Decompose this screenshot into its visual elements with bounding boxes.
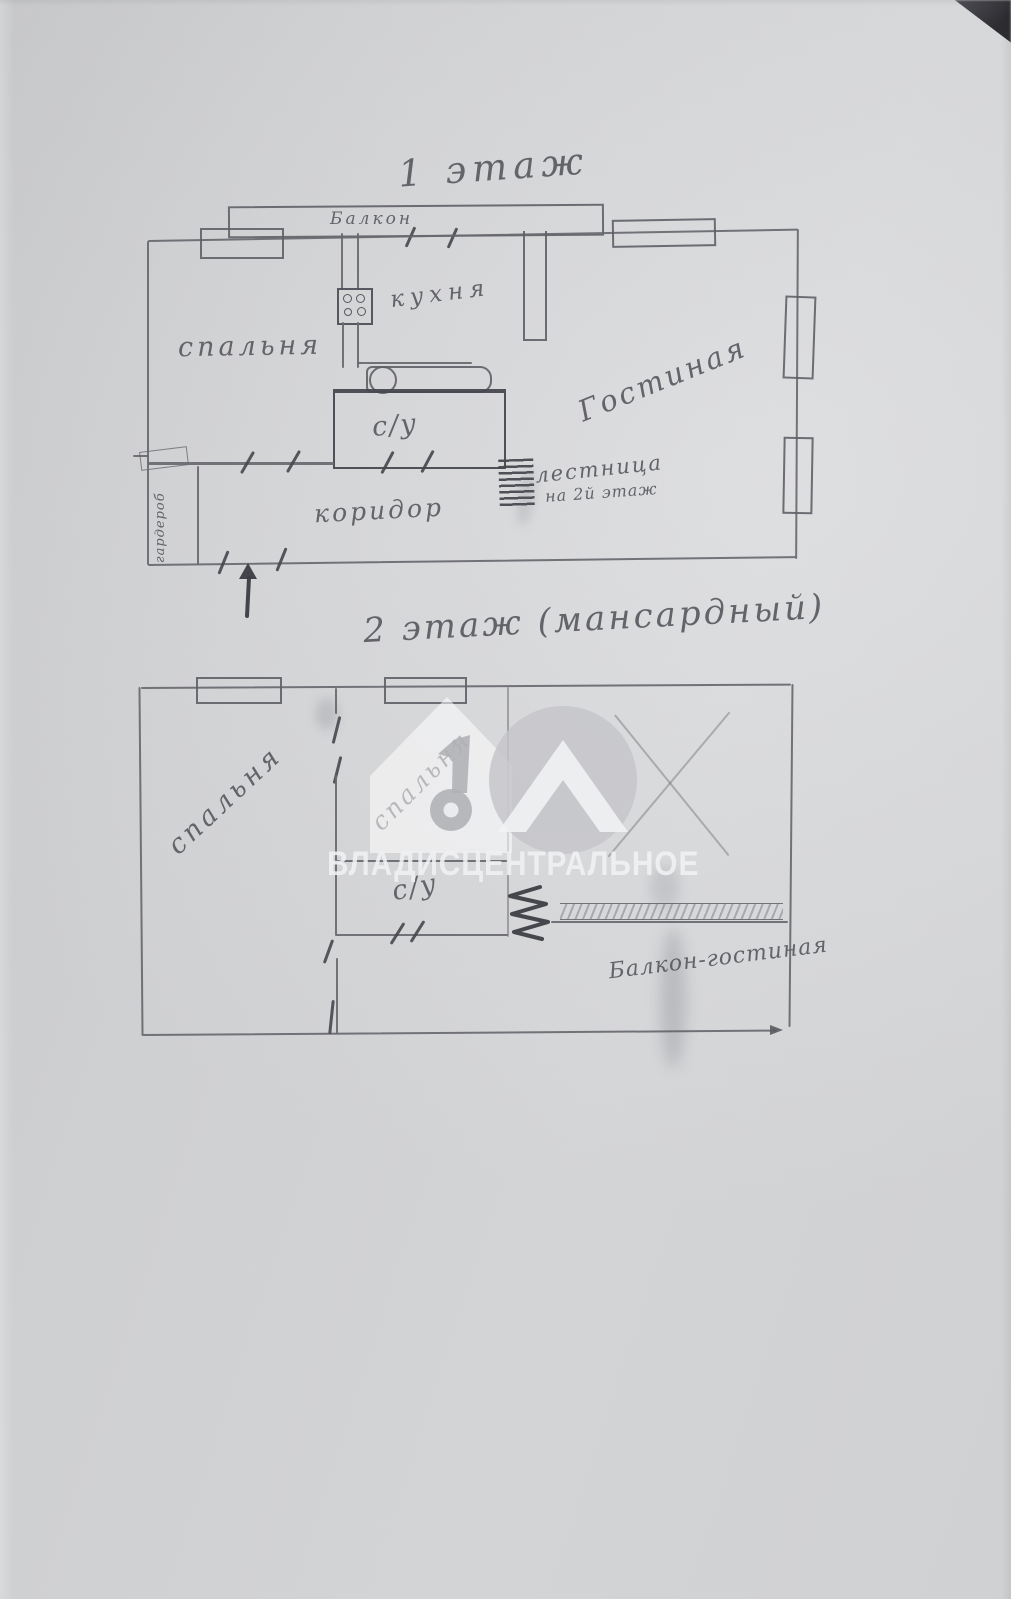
pencil-smudge [650, 866, 680, 908]
inner-wall [336, 958, 338, 1034]
wall-left [138, 687, 143, 1036]
floor2-plan: 2 этаж (мансардный) спальня спальня с/у … [0, 0, 1011, 1599]
pencil-smudge [316, 698, 338, 730]
window [196, 677, 282, 704]
bathroom-wall [336, 934, 508, 936]
door-mark [328, 1000, 335, 1034]
cross-mark [614, 714, 729, 856]
photo-edge-left [0, 0, 14, 1599]
wall-right [789, 684, 794, 1027]
bedroom-left-label: спальня [160, 738, 291, 863]
window [384, 677, 467, 704]
floor2-title: 2 этаж (мансардный) [362, 587, 826, 651]
photo-edge-right [1001, 0, 1011, 1599]
pencil-smudge [660, 928, 686, 1068]
bathroom-label: с/у [389, 868, 440, 907]
balcony-living-label: Балкон-гостиная [607, 933, 829, 985]
inner-wall [335, 775, 337, 936]
door-mark [410, 920, 426, 943]
bedroom-bathroom-wall [336, 860, 508, 862]
door-mark [323, 939, 334, 964]
bedroom-middle-label: спальня [361, 721, 481, 841]
wall-arrowhead [770, 1025, 783, 1035]
spring-stairs-icon [506, 884, 556, 944]
balcony-floor-line [551, 921, 788, 923]
photo-edge-top [0, 0, 1011, 6]
